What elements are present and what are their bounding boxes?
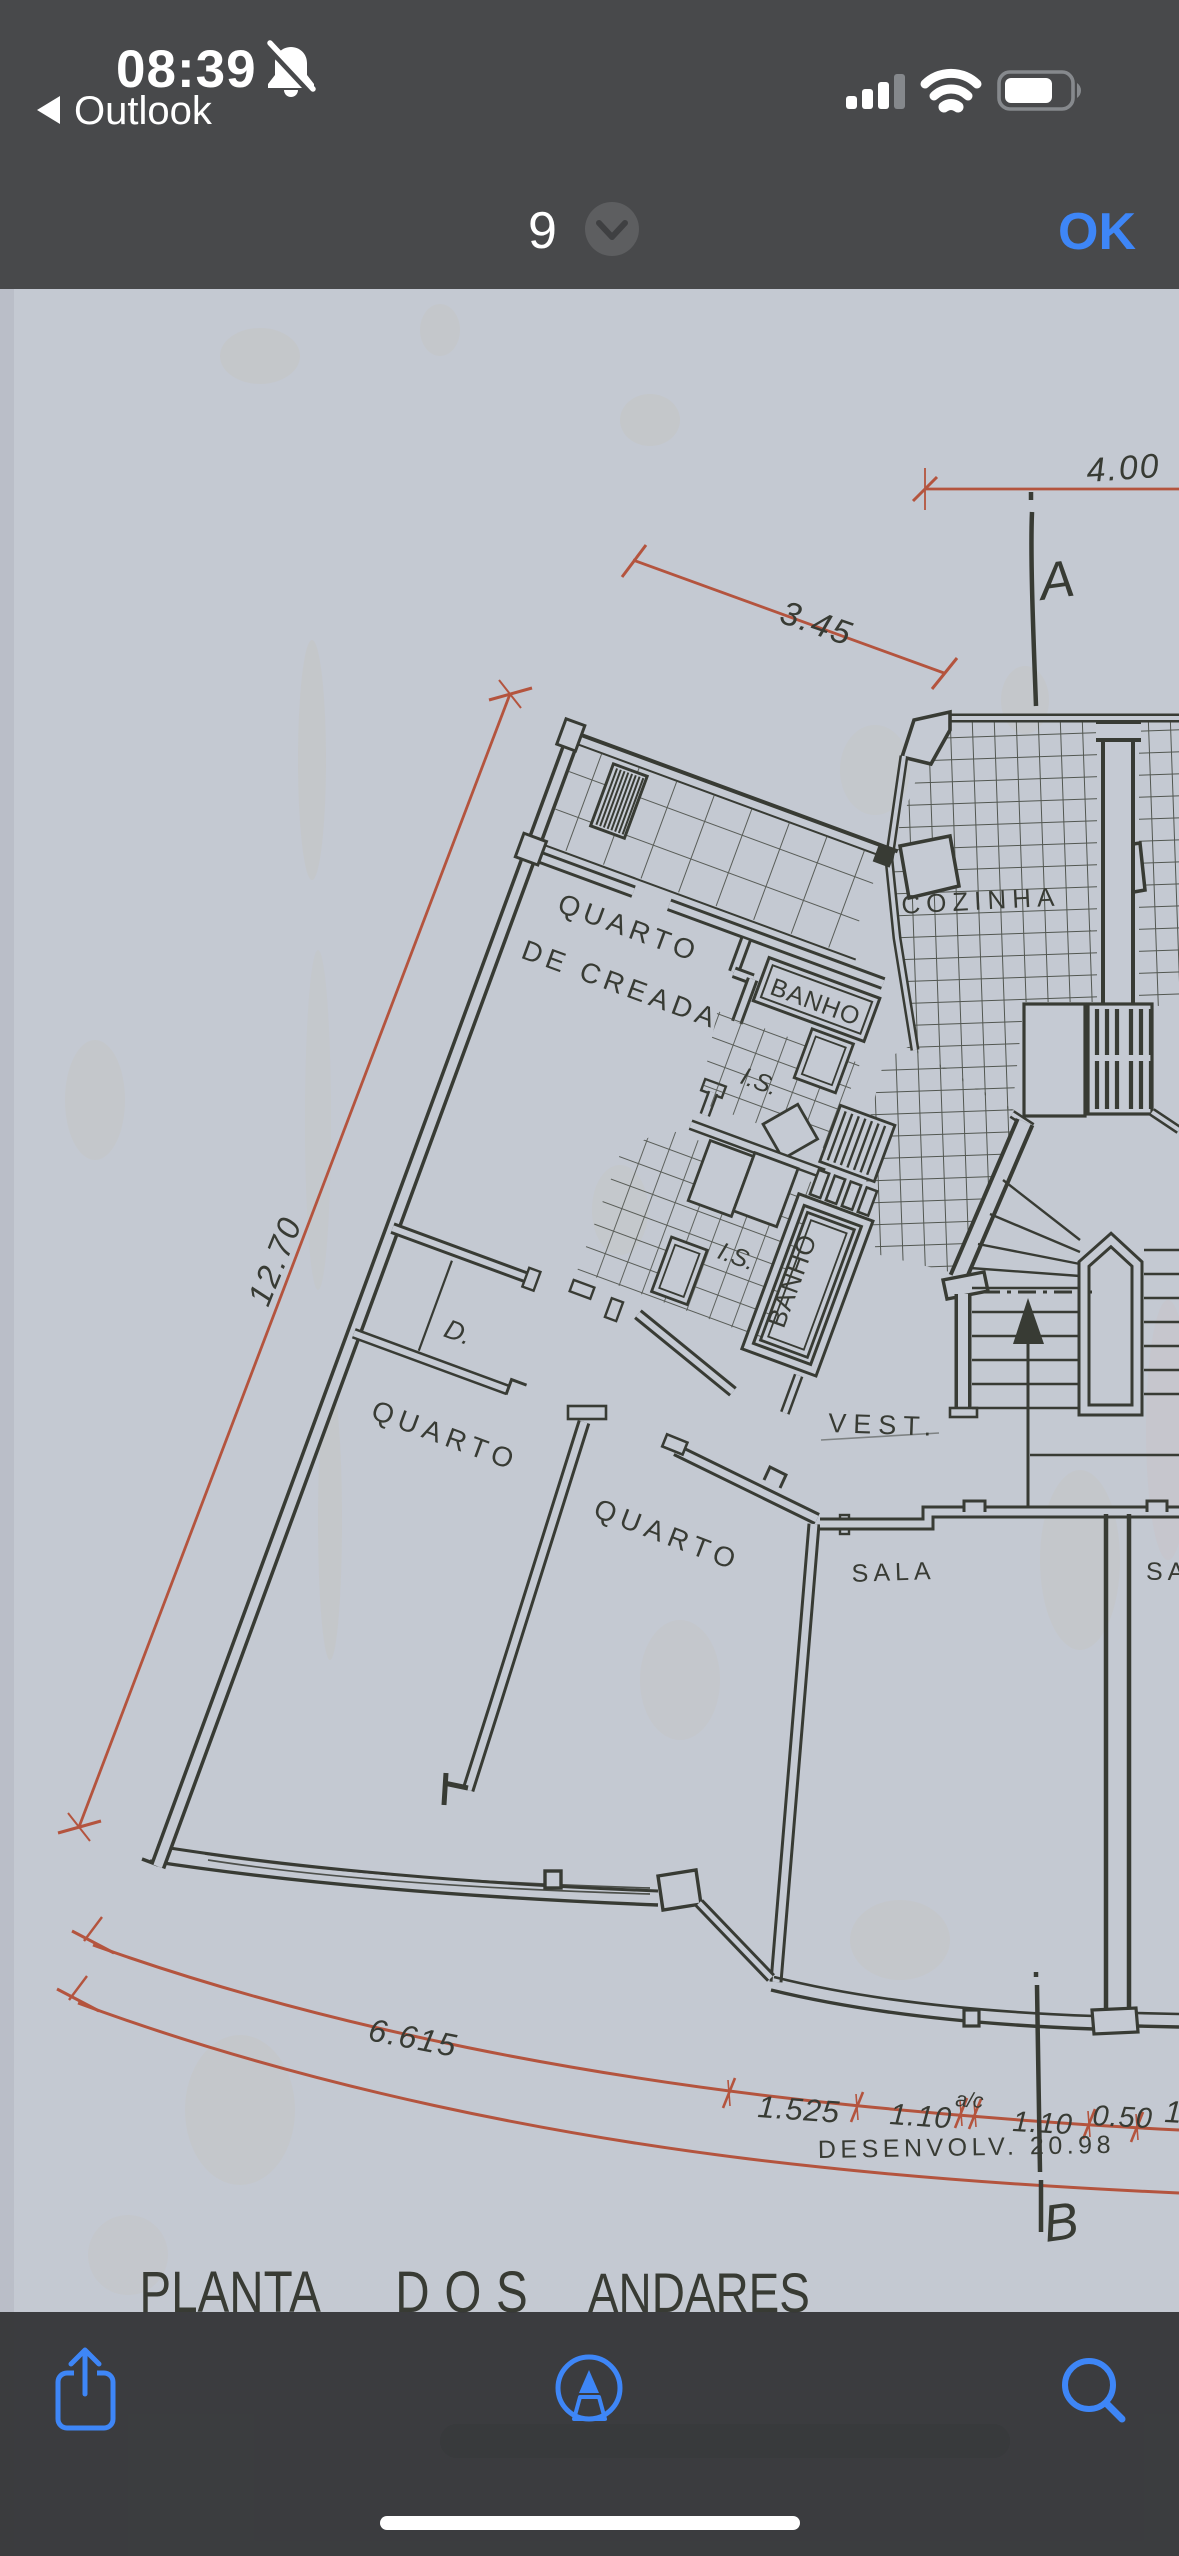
svg-text:4.00: 4.00 <box>1085 447 1162 490</box>
svg-text:1: 1 <box>1164 2094 1179 2130</box>
svg-text:0.50: 0.50 <box>1092 2100 1154 2135</box>
svg-text:9: 9 <box>528 202 557 260</box>
svg-text:SALA: SALA <box>851 1557 936 1588</box>
svg-text:Outlook: Outlook <box>74 89 213 133</box>
svg-text:DESENVOLV. 20.98: DESENVOLV. 20.98 <box>818 2131 1116 2164</box>
svg-text:OK: OK <box>1058 203 1136 261</box>
svg-text:a/c: a/c <box>955 2088 985 2113</box>
svg-text:1.525: 1.525 <box>757 2089 842 2130</box>
svg-text:1.10: 1.10 <box>889 2098 954 2135</box>
svg-text:SA: SA <box>1146 1558 1179 1586</box>
